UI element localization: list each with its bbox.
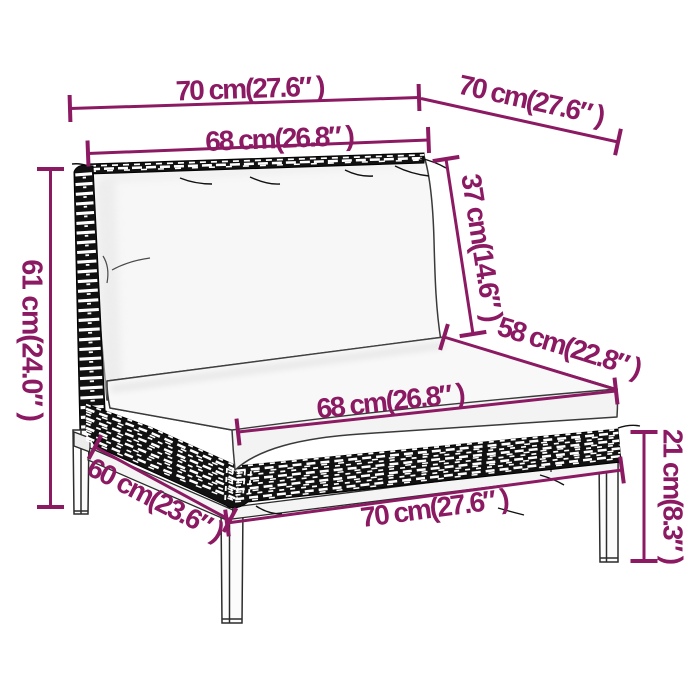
svg-text:68 cm(26.8″ ): 68 cm(26.8″ ) [205,120,355,157]
svg-text:61 cm(24.0″ ): 61 cm(24.0″ ) [16,259,48,421]
svg-text:21 cm(8.3″ ): 21 cm(8.3″ ) [658,429,689,564]
svg-text:70 cm(27.6″ ): 70 cm(27.6″ ) [175,71,324,107]
